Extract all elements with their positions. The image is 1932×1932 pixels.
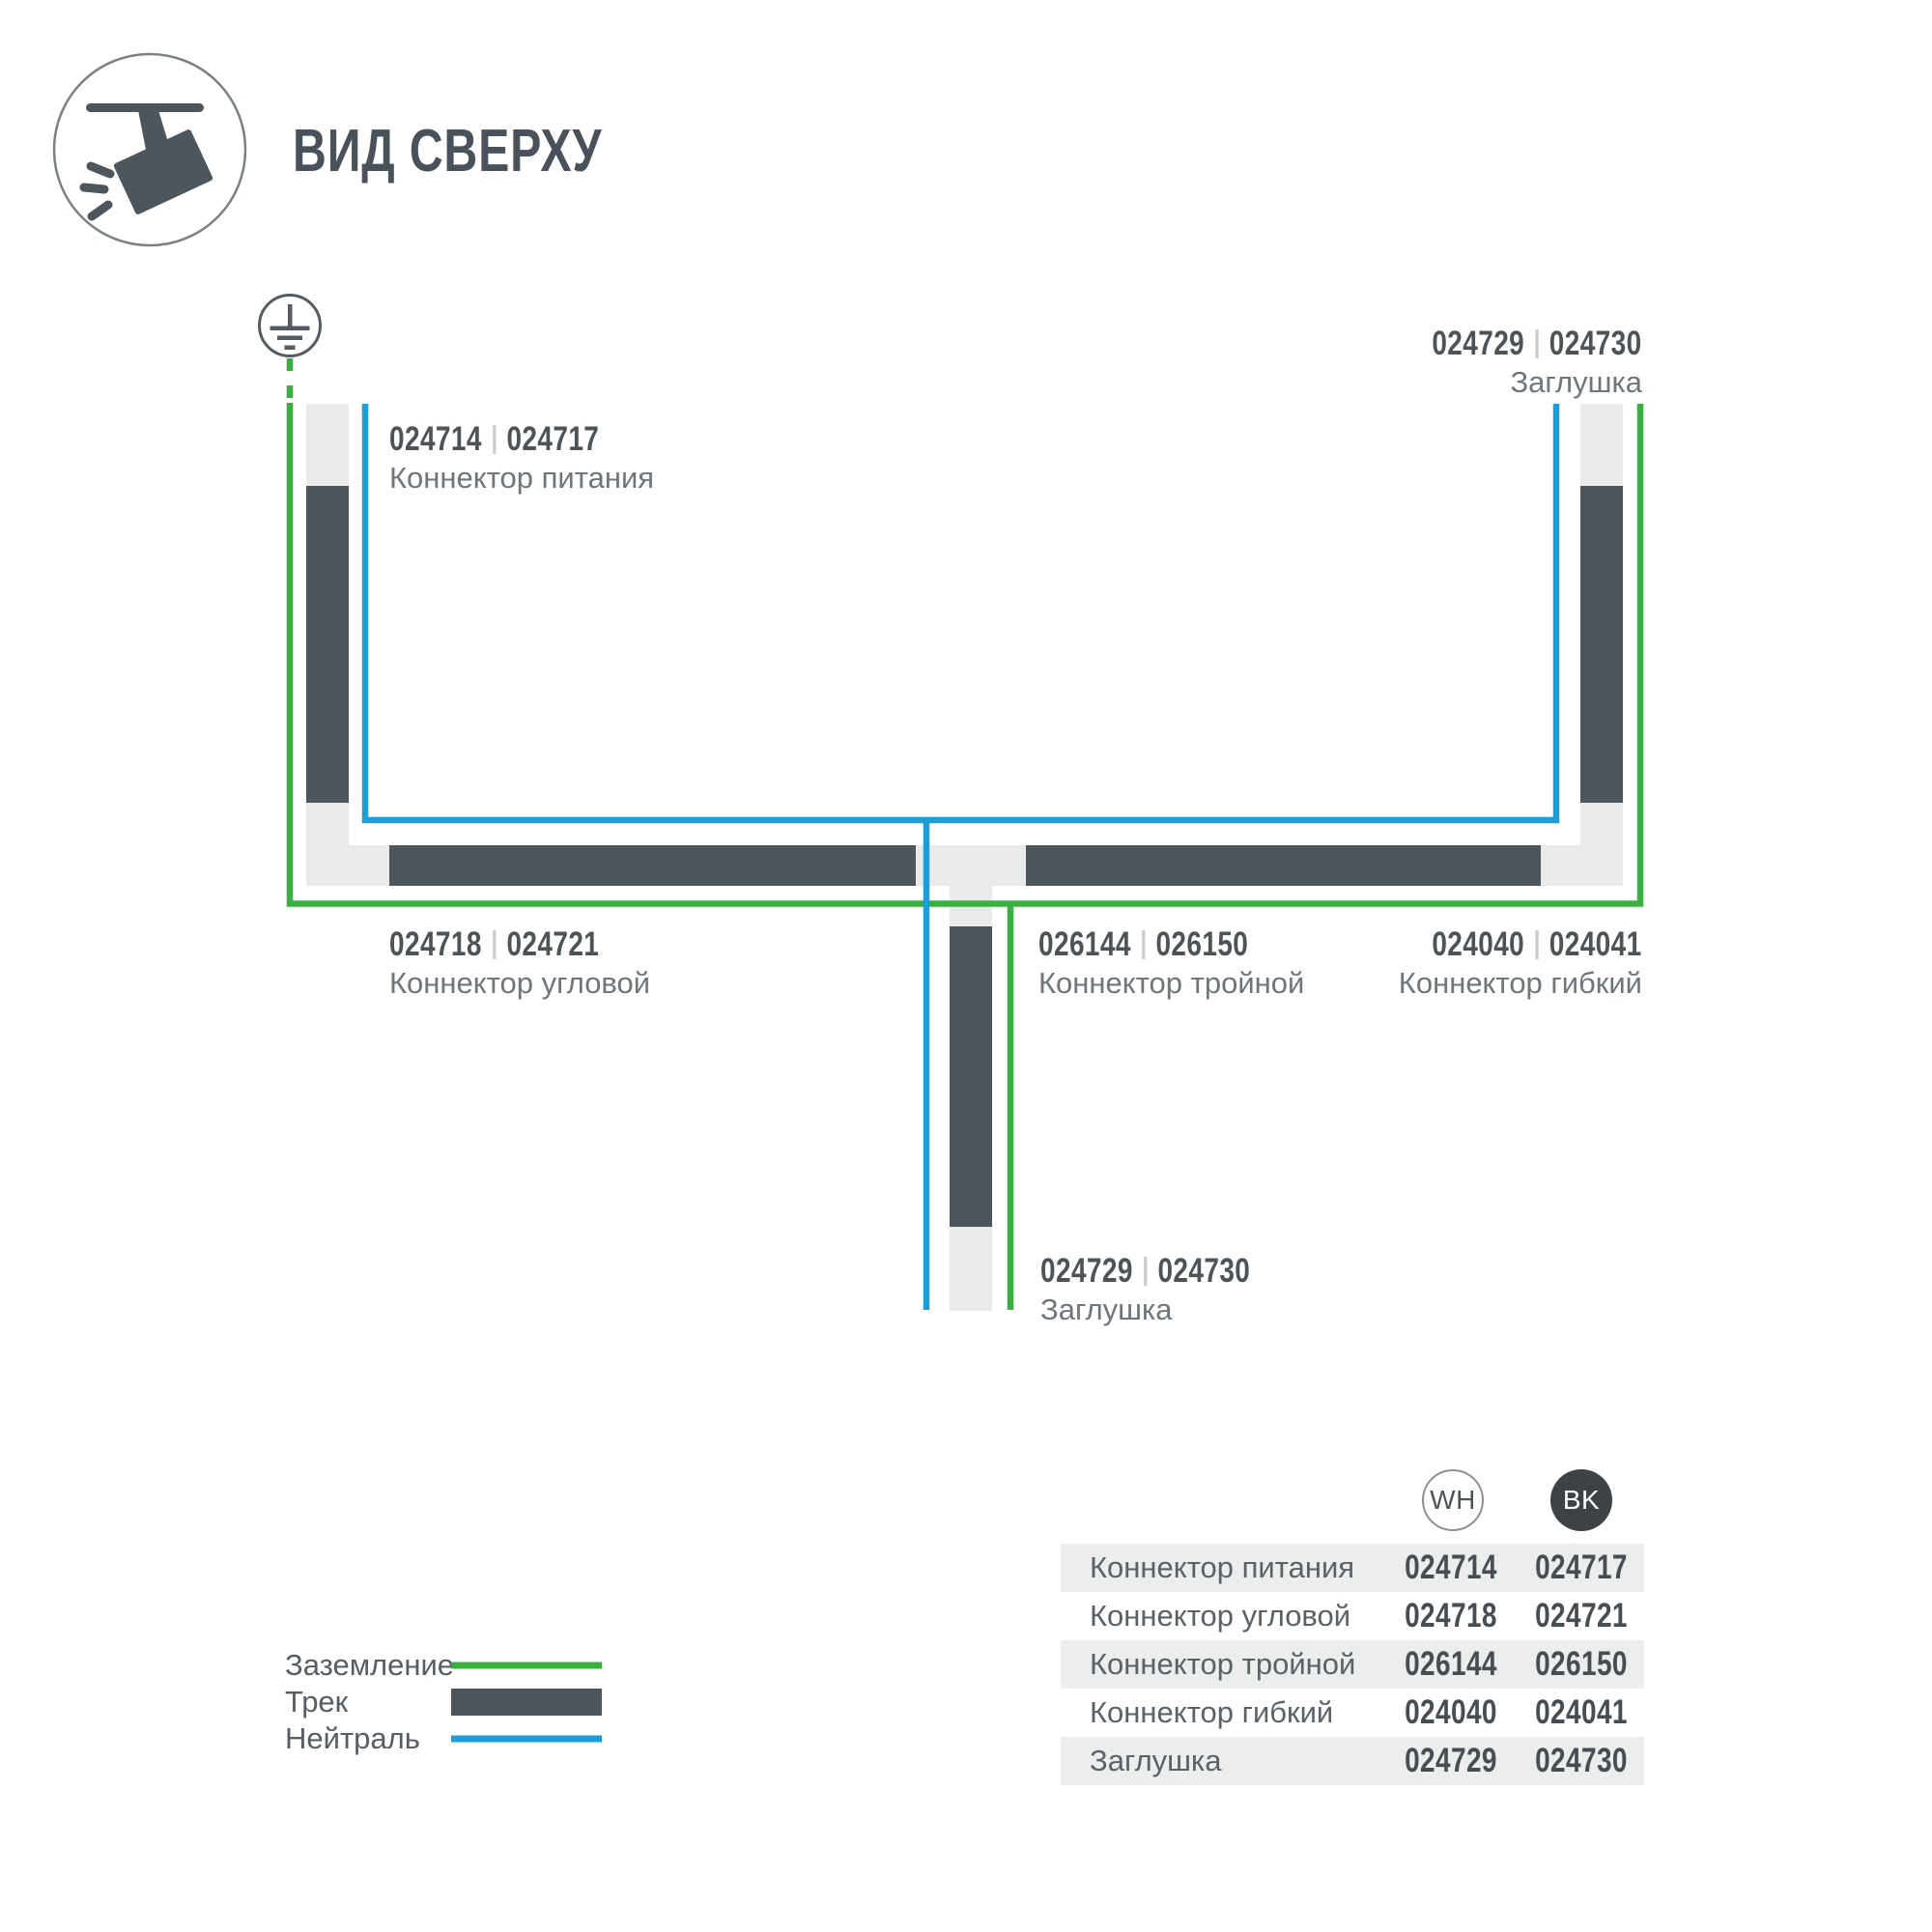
end-cap-bottom	[950, 1227, 992, 1311]
row-label: Коннектор угловой	[1061, 1599, 1383, 1634]
code-bk: 024041	[1549, 928, 1642, 961]
code-separator	[1536, 329, 1539, 358]
part-table: Коннектор питания 024714 024717 Коннекто…	[1061, 1544, 1644, 1785]
legend-item-track: Трек	[285, 1684, 604, 1720]
end-cap-bottom-codes: 024729 024730	[1040, 1254, 1250, 1289]
label-end-cap-bottom: 024729 024730 Заглушка	[1040, 1254, 1303, 1324]
code-wh: 024729	[1040, 1255, 1133, 1288]
corner-connector-right	[1580, 803, 1623, 886]
row-code-wh: 024718	[1397, 1597, 1505, 1635]
code-bk: 024717	[506, 423, 599, 456]
table-row: Заглушка 024729 024730	[1061, 1737, 1644, 1785]
row-label: Заглушка	[1061, 1744, 1383, 1778]
end-cap-top-codes: 024729 024730	[1433, 327, 1642, 361]
track-segment-stem	[950, 926, 992, 1227]
label-end-cap-top: 024729 024730 Заглушка	[1379, 327, 1642, 397]
row-label: Коннектор гибкий	[1061, 1695, 1383, 1730]
code-wh: 024040	[1433, 928, 1525, 961]
code-separator	[493, 425, 496, 454]
track-bar-swatch	[451, 1689, 602, 1716]
track-segment-middle-left	[389, 845, 916, 886]
track-segment-middle-right	[1026, 845, 1541, 886]
label-corner-connector: 024718 024721 Коннектор угловой	[389, 927, 652, 998]
triple-connector	[916, 845, 1026, 886]
code-bk: 024730	[1549, 327, 1642, 360]
color-badge-white: WH	[1422, 1469, 1484, 1531]
end-cap-bottom-name: Заглушка	[1040, 1294, 1303, 1324]
table-row: Коннектор питания 024714 024717	[1061, 1544, 1644, 1592]
row-label: Коннектор тройной	[1061, 1647, 1383, 1682]
code-separator	[1536, 930, 1539, 959]
power-connector-name: Коннектор питания	[389, 463, 654, 493]
flexible-connector-codes: 024040 024041	[1433, 927, 1642, 962]
legend-track-label: Трек	[285, 1685, 348, 1719]
track-segment-right	[1580, 486, 1623, 803]
row-code-wh: 024714	[1397, 1548, 1505, 1587]
code-separator	[1144, 1257, 1147, 1286]
corner-connector-name: Коннектор угловой	[389, 968, 652, 998]
track-segment-left	[306, 486, 349, 803]
code-bk: 026150	[1155, 928, 1248, 961]
code-wh: 024729	[1433, 327, 1525, 360]
corner-connector-right-leg	[1541, 845, 1580, 886]
table-row: Коннектор гибкий 024040 024041	[1061, 1689, 1644, 1737]
row-code-bk: 026150	[1531, 1645, 1632, 1684]
legend-neutral-label: Нейтраль	[285, 1721, 420, 1756]
code-wh: 026144	[1038, 928, 1131, 961]
page-title: ВИД СВЕРХУ	[293, 123, 602, 181]
triple-connector-name: Коннектор тройной	[1038, 968, 1304, 998]
row-label: Коннектор питания	[1061, 1550, 1383, 1585]
table-row: Коннектор угловой 024718 024721	[1061, 1592, 1644, 1640]
ground-icon	[260, 296, 321, 356]
label-flexible-connector: 024040 024041 Коннектор гибкий	[1379, 927, 1642, 998]
label-triple-connector: 026144 026150 Коннектор тройной	[1038, 927, 1304, 998]
legend-item-ground: Заземление	[285, 1647, 604, 1684]
track-light-icon	[54, 54, 245, 245]
legend: Заземление Трек Нейтраль	[285, 1647, 604, 1757]
code-separator	[493, 930, 496, 959]
corner-connector-left	[306, 803, 349, 886]
ground-line-swatch	[451, 1662, 602, 1669]
row-code-wh: 024040	[1397, 1693, 1505, 1732]
end-cap-top-name: Заглушка	[1379, 367, 1642, 397]
row-code-bk: 024717	[1531, 1548, 1632, 1587]
table-row: Коннектор тройной 026144 026150	[1061, 1640, 1644, 1689]
end-cap-left-top	[306, 404, 349, 486]
neutral-line-swatch	[451, 1736, 602, 1743]
code-wh: 024714	[389, 423, 482, 456]
code-separator	[1142, 930, 1145, 959]
page: ВИД СВЕРХУ 024714 024717 Коннектор питан…	[0, 0, 1932, 1932]
row-code-bk: 024730	[1531, 1742, 1632, 1780]
code-bk: 024721	[506, 928, 599, 961]
flexible-connector-name: Коннектор гибкий	[1379, 968, 1642, 998]
legend-item-neutral: Нейтраль	[285, 1720, 604, 1757]
end-cap-right-top	[1580, 404, 1623, 486]
row-code-wh: 024729	[1397, 1742, 1505, 1780]
power-connector-codes: 024714 024717	[389, 422, 601, 457]
row-code-bk: 024721	[1531, 1597, 1632, 1635]
corner-connector-codes: 024718 024721	[389, 927, 599, 962]
color-badge-black: BK	[1550, 1469, 1612, 1531]
triple-connector-codes: 026144 026150	[1038, 927, 1251, 962]
row-code-wh: 026144	[1397, 1645, 1505, 1684]
legend-ground-label: Заземление	[285, 1648, 454, 1683]
code-bk: 024730	[1157, 1255, 1250, 1288]
code-wh: 024718	[389, 928, 482, 961]
corner-connector-left-leg	[349, 845, 389, 886]
label-power-connector: 024714 024717 Коннектор питания	[389, 422, 654, 493]
row-code-bk: 024041	[1531, 1693, 1632, 1732]
